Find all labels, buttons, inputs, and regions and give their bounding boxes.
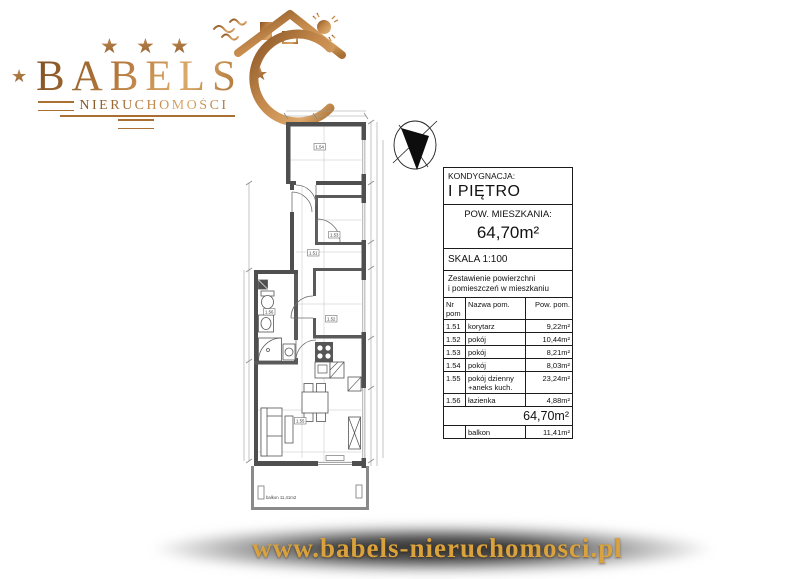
row-name-cell: pokój — [466, 359, 526, 371]
col-header-pow: Pow. pom. — [526, 298, 572, 319]
balkon-name-cell: balkon — [466, 426, 526, 438]
row-name-cell: pokój dzienny +aneks kuch. — [466, 372, 526, 393]
floor-label: KONDYGNACJA: — [448, 171, 568, 181]
floor-section: KONDYGNACJA: I PIĘTRO — [444, 168, 572, 205]
row-nr-cell: 1.51 — [444, 320, 466, 332]
row-nr-cell: 1.55 — [444, 372, 466, 393]
rooms-table: Nr pom Nazwa pom. Pow. pom. 1.51 korytar… — [444, 298, 572, 438]
summary-caption: Zestawienie powierzchni i pomieszczeń w … — [444, 271, 572, 298]
area-label: POW. MIESZKANIA: — [446, 209, 570, 220]
subtitle-rule-right — [118, 119, 154, 129]
bathroom-fixtures — [259, 280, 296, 361]
table-body: 1.51 korytarz 9,22m² 1.52 pokój 10,44m² … — [444, 320, 572, 407]
row-name-cell: łazienka — [466, 394, 526, 406]
table-row: 1.56 łazienka 4,88m² — [444, 394, 572, 407]
room-label: 1.53 — [330, 233, 339, 238]
balkon-area-cell: 11,41m² — [526, 426, 572, 438]
balcony-label: balkon 11,41m2 — [266, 495, 297, 500]
floor-plan: 1.54 1.53 1.51 1.52 1.56 1.55 balkon 11,… — [238, 106, 444, 522]
row-area-cell: 8,03m² — [526, 359, 572, 371]
row-name-cell: pokój — [466, 346, 526, 358]
footer-bar: www.babels-nieruchomosci.pl — [0, 522, 800, 579]
balcony: balkon 11,41m2 — [251, 466, 369, 510]
north-arrow-icon — [393, 121, 437, 170]
flyer-page: ★ ★ ★ ★ BABELS ★ NIERUCHOMOŚCI — [0, 0, 800, 579]
table-header-row: Nr pom Nazwa pom. Pow. pom. — [444, 298, 572, 320]
row-nr-cell: 1.52 — [444, 333, 466, 345]
room-label: 1.56 — [265, 310, 274, 315]
scale-section: SKALA 1:100 — [444, 249, 572, 271]
table-row: 1.53 pokój 8,21m² — [444, 346, 572, 359]
balkon-row: balkon 11,41m² — [444, 426, 572, 438]
row-nr-cell: 1.54 — [444, 359, 466, 371]
table-row: 1.55 pokój dzienny +aneks kuch. 23,24m² — [444, 372, 572, 394]
row-area-cell: 4,88m² — [526, 394, 572, 406]
row-area-cell: 10,44m² — [526, 333, 572, 345]
balkon-nr-cell — [444, 426, 466, 438]
room-label: 1.54 — [316, 145, 325, 150]
row-nr-cell: 1.53 — [444, 346, 466, 358]
footer-url: www.babels-nieruchomosci.pl — [75, 533, 800, 564]
living-furniture — [261, 384, 361, 457]
row-name-cell: pokój — [466, 333, 526, 345]
total-area-row: 64,70m² — [444, 407, 572, 426]
info-panel: KONDYGNACJA: I PIĘTRO POW. MIESZKANIA: 6… — [443, 167, 573, 439]
area-section: POW. MIESZKANIA: 64,70m² — [444, 205, 572, 249]
table-row: 1.51 korytarz 9,22m² — [444, 320, 572, 333]
row-nr-cell: 1.56 — [444, 394, 466, 406]
col-header-nr: Nr pom — [444, 298, 466, 319]
table-row: 1.52 pokój 10,44m² — [444, 333, 572, 346]
balcony-door — [318, 456, 352, 465]
table-row: 1.54 pokój 8,03m² — [444, 359, 572, 372]
room-label: 1.52 — [327, 317, 336, 322]
birds-icon — [214, 20, 246, 40]
area-value: 64,70m² — [446, 223, 570, 243]
subtitle-rule-left — [38, 101, 74, 111]
room-label: 1.51 — [309, 251, 318, 256]
summary-caption-line1: Zestawienie powierzchni — [448, 274, 568, 284]
row-area-cell: 8,21m² — [526, 346, 572, 358]
col-header-nazwa: Nazwa pom. — [466, 298, 526, 319]
row-area-cell: 9,22m² — [526, 320, 572, 332]
star-icon: ★ — [11, 66, 27, 87]
summary-caption-line2: i pomieszczeń w mieszkaniu — [448, 284, 568, 294]
room-label: 1.55 — [296, 419, 305, 424]
floor-value: I PIĘTRO — [448, 183, 568, 201]
row-name-cell: korytarz — [466, 320, 526, 332]
row-area-cell: 23,24m² — [526, 372, 572, 393]
